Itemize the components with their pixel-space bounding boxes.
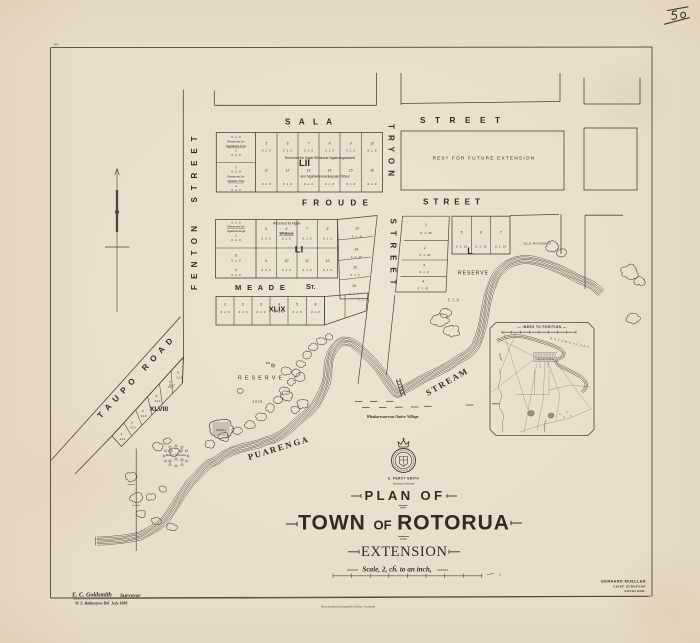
svg-text:0 . 1 . 0: 0 . 1 . 0 (262, 149, 271, 153)
svg-text:3: 3 (423, 263, 425, 267)
svg-text:15: 15 (349, 168, 353, 172)
svg-text:LI: LI (295, 245, 303, 256)
svg-text:4: 4 (235, 268, 237, 272)
svg-text:S T R E E T: S T R E E T (389, 219, 398, 285)
svg-text:2: 2 (235, 234, 237, 238)
svg-text:Surveyor General: Surveyor General (393, 481, 414, 485)
svg-text:0 . 1 . 0: 0 . 1 . 0 (239, 310, 248, 314)
svg-text:15: 15 (353, 266, 357, 270)
svg-text:Puwahu: Puwahu (215, 429, 226, 432)
svg-text:0 . 1 . 0: 0 . 1 . 0 (304, 182, 313, 186)
svg-text:12: 12 (326, 259, 330, 263)
svg-text:AUCKLAND.: AUCKLAND. (624, 589, 646, 593)
svg-text:0 . 1 . 0: 0 . 1 . 0 (282, 268, 291, 272)
svg-text:5: 5 (461, 231, 463, 235)
svg-text:0 . 1 . 0: 0 . 1 . 0 (262, 268, 271, 272)
svg-text:7: 7 (500, 231, 503, 235)
svg-text:4: 4 (422, 279, 424, 283)
svg-text:14: 14 (328, 168, 332, 172)
svg-text:Ngatituananga: Ngatituananga (227, 229, 246, 233)
svg-text:S T R E E T: S T R E E T (423, 197, 480, 206)
svg-text:2: 2 (241, 303, 244, 307)
svg-text:0 . 1 . 0: 0 . 1 . 0 (325, 149, 334, 153)
svg-text:Surveyor: Surveyor (120, 593, 141, 599)
svg-text:S T R E E T: S T R E E T (190, 136, 199, 202)
svg-text:0 . 1 . 11: 0 . 1 . 11 (352, 234, 363, 238)
svg-text:0 . 1 . 0: 0 . 1 . 0 (367, 149, 376, 153)
svg-text:2: 2 (130, 420, 133, 424)
svg-text:0 . 1 . 0: 0 . 1 . 0 (323, 268, 332, 272)
svg-text:F R O U D E: F R O U D E (302, 199, 369, 208)
svg-text:0 . 1 . 15: 0 . 1 . 15 (495, 245, 506, 249)
svg-text:13: 13 (307, 168, 311, 172)
svg-text:Reserved for: Reserved for (227, 225, 244, 229)
svg-text:6: 6 (480, 231, 482, 235)
svg-text:5 . 1 . 9: 5 . 1 . 9 (448, 299, 459, 303)
svg-text:0 . 1 . 0: 0 . 1 . 0 (231, 259, 241, 263)
svg-text:0.1.0: 0.1.0 (177, 377, 183, 380)
svg-text:and Ngatiwhenukukapako Tribe: and Ngatiwhenukukapako Tribes (300, 175, 349, 179)
svg-text:Tauranga: Tauranga (498, 353, 503, 362)
svg-text:0 . 1 . 0: 0 . 1 . 0 (231, 153, 241, 157)
svg-text:S T R E E T: S T R E E T (420, 116, 500, 125)
svg-text:Reserved for: Reserved for (227, 174, 244, 178)
svg-text:0.1.7: 0.1.7 (169, 384, 175, 387)
svg-text:522: 522 (266, 361, 271, 365)
svg-text:M E A D E: M E A D E (235, 283, 285, 292)
svg-text:0 . 1 . 22: 0 . 1 . 22 (420, 253, 431, 257)
svg-text:0 . 1 . 0: 0 . 1 . 0 (282, 237, 291, 241)
svg-text:1: 1 (224, 303, 226, 307)
svg-text:E. C. Goldsmith: E. C. Goldsmith (71, 593, 112, 599)
svg-text:Reserved for Ngati-: Reserved for Ngati- (273, 222, 301, 226)
svg-text:0 . 1 . 25: 0 . 1 . 25 (421, 231, 432, 235)
svg-text:— INDEX TO POSITION —: — INDEX TO POSITION — (518, 325, 567, 329)
svg-text:14: 14 (354, 248, 358, 252)
svg-text:4: 4 (156, 394, 158, 398)
svg-text:0.1.0: 0.1.0 (141, 415, 147, 418)
svg-text:3: 3 (235, 254, 237, 258)
svg-text:Reserved for: Reserved for (227, 139, 244, 143)
svg-text:Scale, 2, cḣ. to an inch,: Scale, 2, cḣ. to an inch, (362, 564, 431, 574)
svg-text:0 . 1 . 0: 0 . 1 . 0 (323, 237, 332, 241)
svg-text:S. PERCY SMITH: S. PERCY SMITH (388, 477, 420, 481)
svg-text:0.1.0: 0.1.0 (130, 426, 136, 429)
svg-text:2: 2 (235, 149, 237, 153)
svg-text:TOWN OF ROTORUA: TOWN OF ROTORUA (536, 358, 555, 361)
svg-text:0 . 1 . 0: 0 . 1 . 0 (303, 237, 312, 241)
svg-text:0 . 1 . 0: 0 . 1 . 0 (257, 310, 266, 314)
svg-text:Apatua: Apatua (126, 483, 135, 486)
svg-text:Whakaue: Whakaue (280, 232, 294, 236)
svg-text:0 . 1 . 0: 0 . 1 . 0 (262, 237, 271, 241)
svg-text:T R Y O N: T R Y O N (387, 124, 396, 176)
svg-text:F E N T O N: F E N T O N (190, 226, 199, 290)
svg-text:7: 7 (308, 142, 310, 146)
svg-text:0 . 1 . 0: 0 . 1 . 0 (367, 182, 376, 186)
svg-text:9: 9 (350, 142, 352, 146)
svg-text:0.1.0: 0.1.0 (120, 438, 126, 441)
svg-text:0 . 1 . 0: 0 . 1 . 0 (283, 182, 292, 186)
svg-text:1: 1 (121, 432, 123, 436)
svg-text:R E S E R V E: R E S E R V E (458, 271, 489, 277)
svg-text:E X T E N S I O N: E X T E N S I O N (361, 544, 448, 560)
svg-text:5 0 10: 5 0 10 (253, 400, 262, 404)
svg-text:6: 6 (177, 371, 179, 375)
svg-text:R E S E R V E: R E S E R V E (238, 376, 283, 382)
svg-text:S A L A: S A L A (285, 117, 332, 126)
svg-text:0 . 1 . 0: 0 . 1 . 0 (303, 268, 312, 272)
svg-text:Pawaha: Pawaha (131, 504, 141, 507)
svg-text:Reserved for Ngati Whakaue: Reserved for Ngati Whakaue Ngatirangiwaw… (285, 156, 356, 160)
svg-text:1: 1 (425, 223, 427, 227)
svg-text:5: 5 (265, 142, 267, 146)
svg-text:16: 16 (352, 284, 356, 288)
svg-text:0 . 1 . 0: 0 . 1 . 0 (293, 310, 302, 314)
svg-text:5: 5 (265, 227, 267, 231)
svg-text:8: 8 (329, 142, 331, 146)
svg-text:0 . 1 . 0: 0 . 1 . 0 (221, 310, 230, 314)
svg-text:5 . 1 . 9: 5 . 1 . 9 (358, 298, 368, 302)
svg-text:0 . 1 . 0: 0 . 1 . 0 (231, 170, 241, 174)
svg-text:5: 5 (296, 303, 298, 307)
svg-text:11: 11 (265, 168, 269, 172)
svg-text:GERHARD MUELLER: GERHARD MUELLER (601, 580, 646, 584)
svg-text:3: 3 (142, 409, 144, 413)
svg-text:New Zealand Lithographic Works: New Zealand Lithographic Works, Auckland (321, 605, 375, 609)
svg-text:0 . 1 . 0: 0 . 1 . 0 (231, 273, 241, 277)
svg-text:OLD ROADWAY: OLD ROADWAY (524, 242, 552, 246)
svg-text:0 . 1 . 0: 0 . 1 . 0 (262, 182, 271, 186)
svg-text:XLVIII: XLVIII (150, 406, 168, 413)
svg-text:Ngatitkaha Tribe: Ngatitkaha Tribe (226, 144, 247, 148)
svg-text:S T R E A M: S T R E A M (424, 366, 469, 398)
svg-text:6: 6 (314, 303, 316, 307)
svg-text:Ngatitiki Tribe: Ngatitiki Tribe (228, 179, 245, 183)
svg-text:Maori Cultivation: Maori Cultivation (165, 454, 187, 457)
svg-text:9: 9 (265, 259, 267, 263)
svg-text:0 . 1 . 0: 0 . 1 . 0 (283, 149, 292, 153)
svg-text:0 . 1 . 0: 0 . 1 . 0 (346, 182, 355, 186)
svg-text:0 . 1 . 3: 0 . 1 . 3 (419, 270, 429, 274)
svg-text:0 . 1 . 0: 0 . 1 . 0 (311, 310, 320, 314)
svg-text:0 . 1 . 01: 0 . 1 . 01 (418, 286, 429, 290)
svg-text:7: 7 (306, 227, 308, 231)
svg-text:484: 484 (54, 43, 59, 47)
svg-text:2: 2 (498, 573, 501, 577)
svg-text:0 . 1 . 0: 0 . 1 . 0 (346, 149, 355, 153)
svg-text:16: 16 (370, 168, 374, 172)
svg-text:PLAN OF: PLAN OF (365, 488, 444, 503)
svg-text:6: 6 (286, 227, 288, 231)
svg-text:0 . 1 . 0: 0 . 1 . 0 (231, 135, 241, 139)
svg-text:0 . 1 . 10: 0 . 1 . 10 (351, 255, 362, 259)
svg-text:6: 6 (287, 142, 289, 146)
svg-text:0 . 1 . 15: 0 . 1 . 15 (476, 245, 487, 249)
svg-text:TOWN OF ROTORUA: TOWN OF ROTORUA (298, 512, 510, 535)
svg-text:0.1.0: 0.1.0 (155, 400, 161, 403)
svg-text:11: 11 (305, 259, 309, 263)
svg-text:12: 12 (286, 168, 290, 172)
svg-text:0 . 1 . 15: 0 . 1 . 15 (456, 245, 467, 249)
svg-text:RESD FOR FUTURE EXTENSION: RESD FOR FUTURE EXTENSION (433, 155, 536, 160)
svg-text:0 . 1 . 0: 0 . 1 . 0 (304, 149, 313, 153)
svg-text:0 . 1 . 5: 0 . 1 . 5 (351, 273, 360, 277)
svg-text:L: L (467, 246, 473, 256)
svg-text:XLIX: XLIX (269, 305, 286, 314)
svg-text:Whakarewarewa Native Village: Whakarewarewa Native Village (367, 414, 419, 419)
svg-text:0 . 1 . 0: 0 . 1 . 0 (325, 182, 334, 186)
svg-text:8: 8 (327, 227, 329, 231)
svg-text:0 . 1 . 0: 0 . 1 . 0 (231, 238, 241, 242)
svg-text:0 . 1 . 0: 0 . 1 . 0 (231, 188, 241, 192)
svg-text:2: 2 (423, 246, 426, 250)
svg-text:W. S. Ballantyne Del̇ July 1: W. S. Ballantyne Del̇ July 1880 (75, 601, 127, 606)
svg-text:ST.: ST. (306, 282, 316, 291)
svg-text:10: 10 (370, 142, 374, 146)
svg-text:10: 10 (285, 259, 289, 263)
svg-text:3: 3 (260, 303, 262, 307)
svg-text:13: 13 (355, 227, 359, 231)
